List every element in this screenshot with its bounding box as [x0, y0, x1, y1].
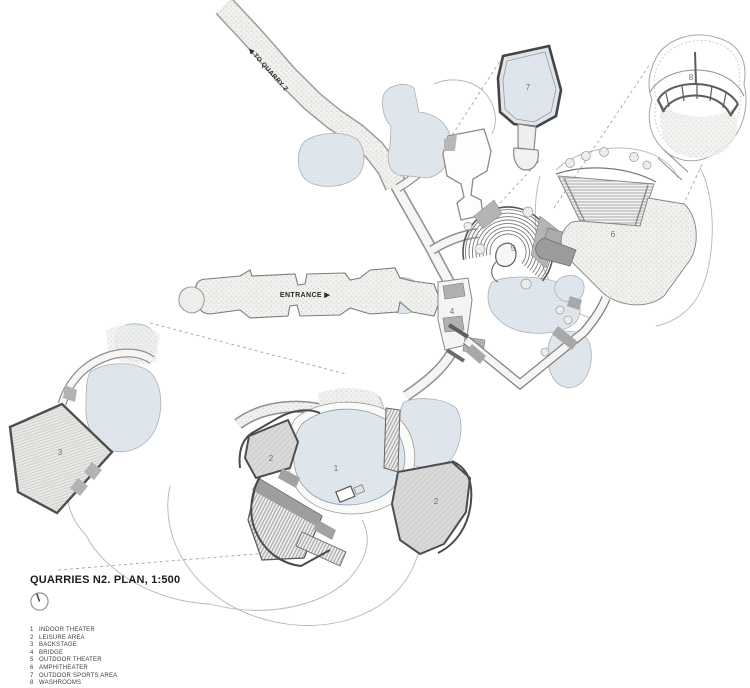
sports-round-end: [514, 148, 539, 170]
area-marker-amphitheater: 6: [611, 230, 616, 239]
legend-item: 1 INDOOR THEATER: [30, 627, 180, 635]
tree: [643, 161, 651, 169]
leader-line: [58, 551, 292, 570]
legend-item: 5 OUTDOOR THEATER: [30, 657, 180, 665]
legend-item-num: 8: [30, 680, 39, 688]
rock: [555, 276, 584, 303]
legend-item-num: 5: [30, 657, 39, 665]
legend-item-num: 1: [30, 627, 39, 635]
entrance-rock-edge: [179, 287, 204, 313]
stairs-hatched-band: [384, 408, 400, 472]
bush: [521, 279, 531, 289]
legend-item-label: AMPHITHEATER: [39, 665, 88, 673]
legend-item-num: 2: [30, 635, 39, 643]
plan-title: QUARRIES N2. PLAN, 1:500: [30, 574, 180, 586]
legend-item-num: 4: [30, 650, 39, 658]
sports-area-callout: [498, 46, 561, 170]
rock: [382, 84, 451, 178]
path-line: [658, 158, 682, 180]
area-marker-leisure-east: 2: [434, 497, 439, 506]
leisure-area-east: [392, 462, 470, 554]
legend-item: 6 AMPHITHEATER: [30, 665, 180, 673]
tree: [582, 152, 591, 161]
north-arrow-icon: [30, 592, 49, 611]
legend-item: 4 BRIDGE: [30, 650, 180, 658]
title-block: QUARRIES N2. PLAN, 1:500 1 INDOOR THEATE…: [30, 574, 180, 688]
legend-item-label: OUTDOOR THEATER: [39, 657, 102, 665]
rock: [298, 133, 364, 186]
legend-item-label: OUTDOOR SPORTS AREA: [39, 673, 117, 681]
stairs-band: [296, 532, 346, 566]
tree: [630, 153, 639, 162]
area-marker-indoor-theater: 1: [334, 464, 339, 473]
corridor-surface: [406, 352, 452, 396]
bush: [523, 207, 533, 217]
legend-item-label: LEISURE AREA: [39, 635, 85, 643]
area-marker-outdoor-theater: 5: [511, 244, 516, 253]
legend-item-num: 3: [30, 642, 39, 650]
legend-item: 2 LEISURE AREA: [30, 635, 180, 643]
stem-wall: [695, 52, 696, 84]
bush: [541, 348, 549, 356]
bush: [564, 316, 572, 324]
legend-item-label: BRIDGE: [39, 650, 63, 658]
legend-item-label: BACKSTAGE: [39, 642, 77, 650]
washrooms-callout: [649, 35, 746, 180]
legend-item: 3 BACKSTAGE: [30, 642, 180, 650]
bridge-ramp: [443, 283, 465, 299]
tree: [600, 148, 609, 157]
legend-item-num: 6: [30, 665, 39, 673]
bush: [556, 306, 564, 314]
amphitheater-seats: [558, 176, 654, 226]
entrance-label: ENTRANCE ▶: [280, 292, 330, 299]
leader-line: [150, 323, 346, 374]
bush: [475, 244, 485, 254]
legend-item: 7 OUTDOOR SPORTS AREA: [30, 673, 180, 681]
legend-item: 8 WASHROOMS: [30, 680, 180, 688]
sports-neck: [518, 124, 536, 150]
bush: [464, 222, 472, 230]
area-marker-bridge: 4: [450, 307, 455, 316]
stage-rock-edge: [492, 262, 498, 282]
area-marker-sports-area: 7: [526, 83, 531, 92]
sports-area-in-plan: [443, 129, 491, 220]
legend-item-label: INDOOR THEATER: [39, 627, 95, 635]
legend-item-num: 7: [30, 673, 39, 681]
corridor-surface: [396, 186, 450, 284]
tree: [566, 159, 575, 168]
area-marker-washrooms: 8: [689, 73, 694, 82]
ramp-block: [314, 520, 336, 540]
legend-item-label: WASHROOMS: [39, 680, 81, 688]
area-marker-leisure-west: 2: [269, 454, 274, 463]
legend: 1 INDOOR THEATER 2 LEISURE AREA 3 BACKST…: [30, 627, 180, 688]
area-marker-backstage: 3: [58, 448, 63, 457]
